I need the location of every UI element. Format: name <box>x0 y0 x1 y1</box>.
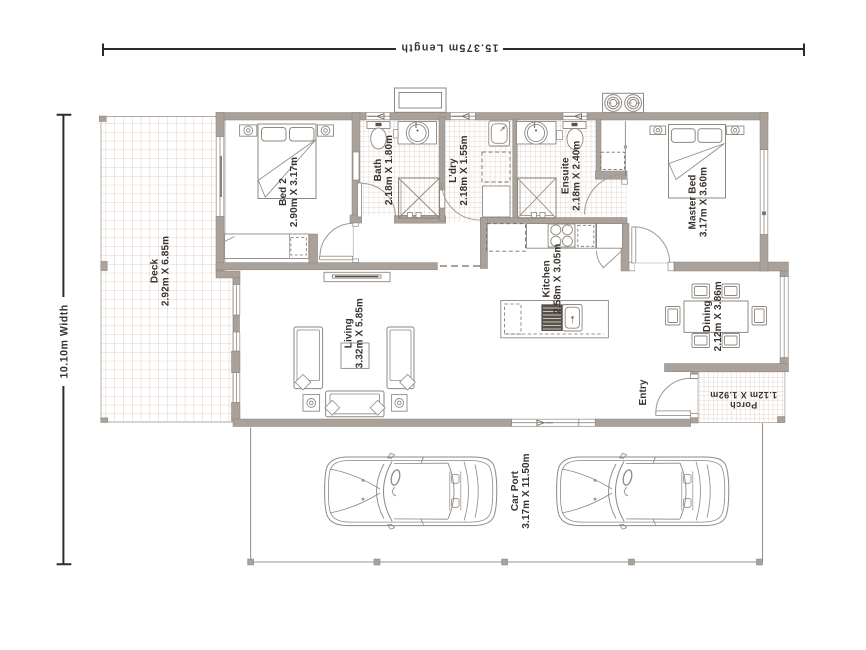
svg-text:Deck: Deck <box>149 259 160 284</box>
svg-text:1.12m X 1.92m: 1.12m X 1.92m <box>710 390 777 400</box>
svg-text:10.10m Width: 10.10m Width <box>59 304 71 378</box>
svg-text:L’dry: L’dry <box>448 158 459 183</box>
svg-text:2.90m X 3.17m: 2.90m X 3.17m <box>289 157 300 227</box>
svg-text:3.17m X 11.50m: 3.17m X 11.50m <box>521 453 532 528</box>
svg-text:Kitchen: Kitchen <box>542 260 553 297</box>
svg-text:Living: Living <box>343 318 354 348</box>
svg-text:2.18m X 2.40m: 2.18m X 2.40m <box>572 141 583 211</box>
svg-text:3.17m X 3.60m: 3.17m X 3.60m <box>698 167 709 237</box>
svg-text:Ensuite: Ensuite <box>561 157 572 194</box>
svg-text:Bath: Bath <box>373 159 384 182</box>
svg-text:Master Bed: Master Bed <box>687 175 698 230</box>
svg-text:Car Port: Car Port <box>510 470 521 511</box>
svg-text:15.375m Length: 15.375m Length <box>400 41 498 53</box>
svg-text:2.12m X 3.86m: 2.12m X 3.86m <box>713 281 724 351</box>
svg-text:3.32m X 5.85m: 3.32m X 5.85m <box>354 298 365 368</box>
svg-text:2.92m X 6.85m: 2.92m X 6.85m <box>160 236 171 306</box>
svg-text:Entry: Entry <box>638 379 649 405</box>
svg-text:Bed 2: Bed 2 <box>278 178 289 206</box>
svg-text:Dining: Dining <box>702 300 713 332</box>
svg-text:Porch: Porch <box>730 400 758 410</box>
svg-text:2.58m X 3.05m: 2.58m X 3.05m <box>553 244 564 314</box>
svg-text:2.18m X 1.55m: 2.18m X 1.55m <box>459 135 470 205</box>
svg-text:2.18m X 1.80m: 2.18m X 1.80m <box>384 135 395 205</box>
